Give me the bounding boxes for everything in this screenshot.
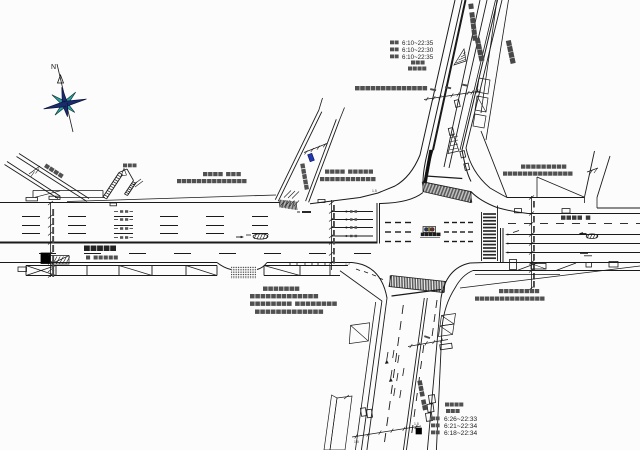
svg-text:6:18~22:34: 6:18~22:34 <box>444 430 478 437</box>
svg-text:1.5: 1.5 <box>372 189 377 193</box>
svg-text:N: N <box>51 64 56 71</box>
svg-text:1.5: 1.5 <box>354 440 359 444</box>
svg-text:6:10~22:30: 6:10~22:30 <box>402 47 434 54</box>
svg-text:6:10~22:35: 6:10~22:35 <box>402 40 434 47</box>
svg-text:6:26~22:33: 6:26~22:33 <box>444 416 478 423</box>
svg-text:1.5: 1.5 <box>414 422 419 426</box>
svg-text:6:21~22:34: 6:21~22:34 <box>444 423 478 430</box>
svg-text:1.5: 1.5 <box>345 262 350 266</box>
svg-text:6:10~22:35: 6:10~22:35 <box>402 54 434 61</box>
